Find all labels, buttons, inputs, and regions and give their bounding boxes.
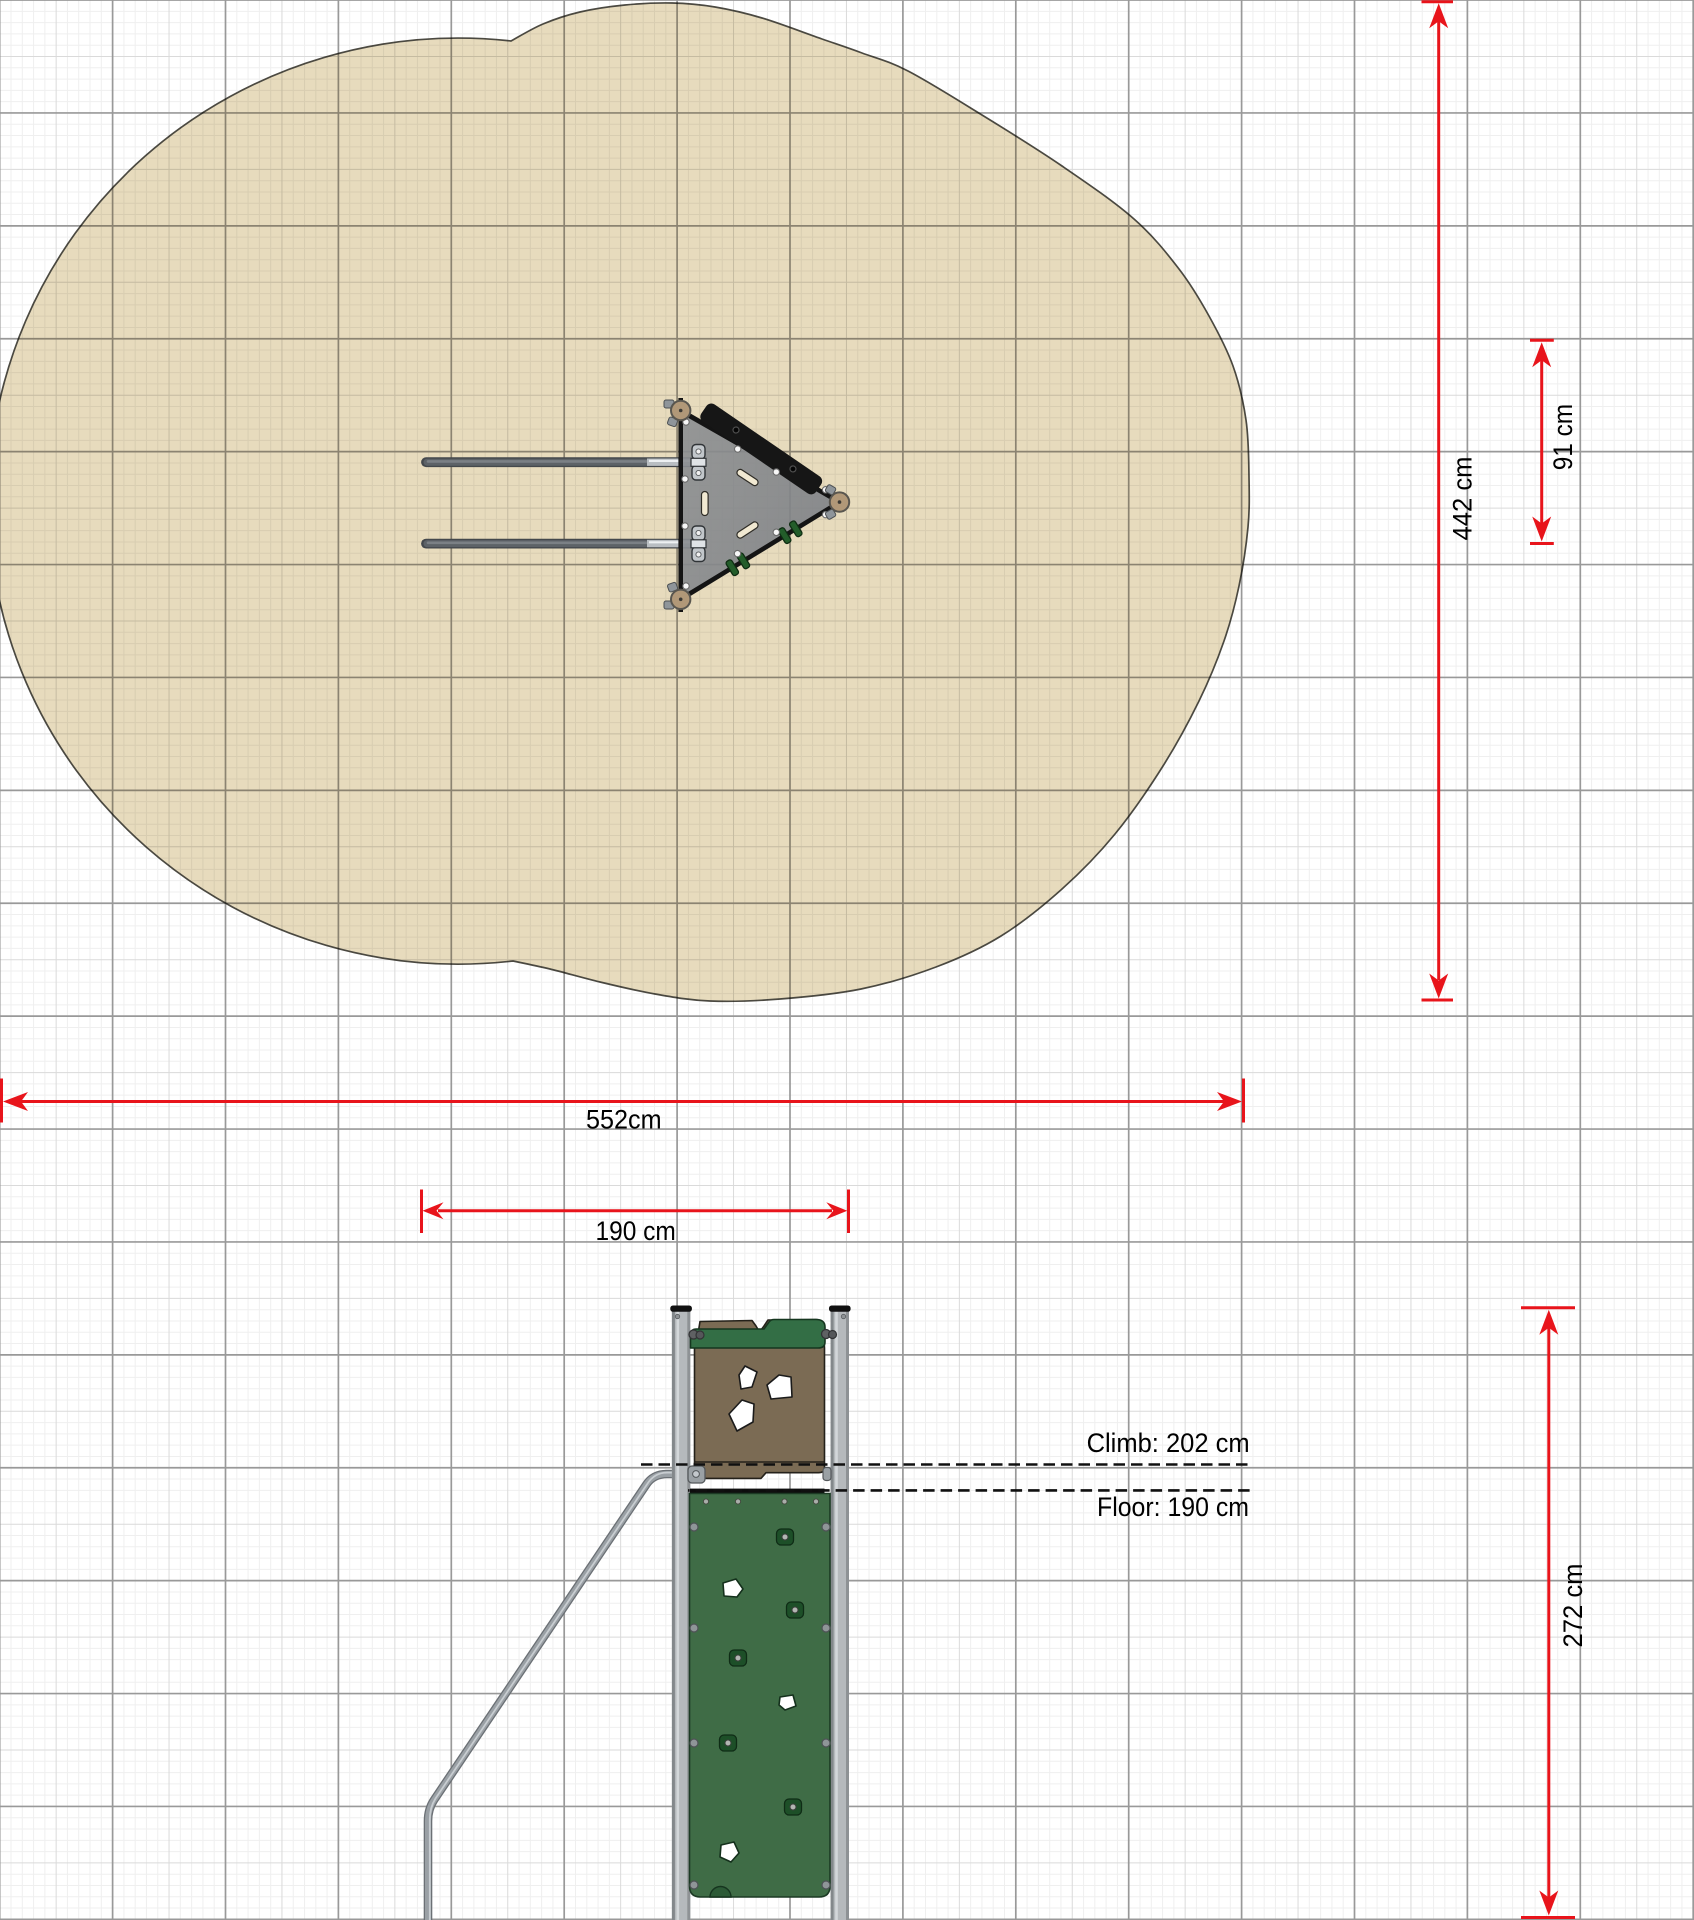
svg-text:Climb: 202 cm: Climb: 202 cm [1087, 1428, 1250, 1458]
svg-text:190 cm: 190 cm [596, 1216, 676, 1246]
svg-text:91 cm: 91 cm [1548, 404, 1578, 470]
svg-text:272 cm: 272 cm [1558, 1564, 1588, 1648]
svg-text:552cm: 552cm [586, 1104, 662, 1134]
svg-text:442 cm: 442 cm [1448, 457, 1478, 541]
svg-text:Floor: 190 cm: Floor: 190 cm [1097, 1492, 1249, 1522]
